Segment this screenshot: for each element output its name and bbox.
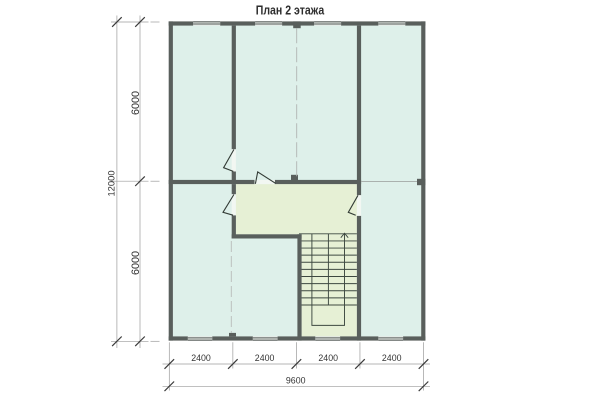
svg-text:9600: 9600	[286, 375, 306, 385]
svg-text:12000: 12000	[106, 170, 117, 196]
svg-text:2400: 2400	[382, 353, 402, 363]
svg-text:6000: 6000	[130, 251, 142, 275]
svg-text:План 2 этажа: План 2 этажа	[256, 4, 325, 18]
svg-text:2400: 2400	[191, 353, 211, 363]
svg-text:6000: 6000	[130, 91, 142, 115]
svg-text:2400: 2400	[255, 353, 275, 363]
svg-text:2400: 2400	[318, 353, 338, 363]
